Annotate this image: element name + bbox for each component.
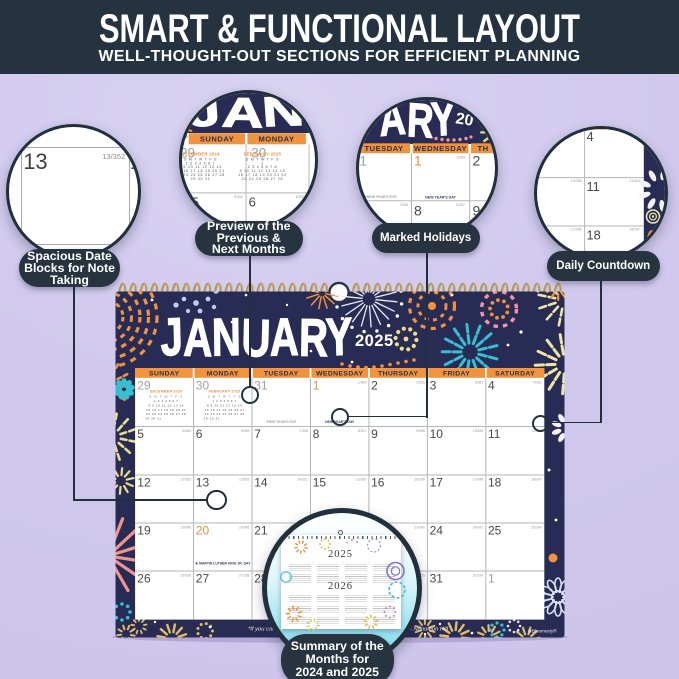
svg-text:10: 10 (430, 427, 444, 441)
svg-text:29 30 31: 29 30 31 (145, 417, 161, 421)
svg-text:20: 20 (196, 524, 210, 538)
svg-text:27: 27 (196, 572, 210, 586)
svg-text:7: 7 (254, 427, 261, 441)
svg-text:4/361: 4/361 (631, 130, 640, 134)
svg-text:18: 18 (587, 228, 601, 243)
svg-text:9: 9 (371, 427, 378, 441)
svg-text:9/356: 9/356 (416, 429, 425, 433)
svg-text:SUNDAY: SUNDAY (149, 370, 180, 377)
svg-text:2/363: 2/363 (416, 380, 425, 384)
svg-text:JANUARY: JANUARY (159, 308, 353, 369)
svg-text:2: 2 (371, 378, 378, 392)
svg-text:✿Bloomesty®: ✿Bloomesty® (528, 628, 557, 634)
svg-text:5: 5 (192, 195, 199, 210)
svg-text:WEDNESDAY: WEDNESDAY (414, 144, 467, 153)
svg-text:15 16 17 18 19 20 21: 15 16 17 18 19 20 21 (204, 408, 244, 412)
svg-text:★ MARTIN LUTHER KING JR. DAY: ★ MARTIN LUTHER KING JR. DAY (194, 562, 251, 566)
svg-text:1: 1 (488, 572, 495, 586)
svg-text:3: 3 (430, 378, 437, 392)
svg-text:31: 31 (356, 153, 368, 169)
svg-text:8/357: 8/357 (358, 429, 367, 433)
svg-text:23 24 25 26 27 28: 23 24 25 26 27 28 (242, 177, 284, 181)
svg-text:7/358: 7/358 (399, 203, 408, 207)
svg-text:2: 2 (473, 153, 481, 169)
svg-text:5: 5 (137, 427, 144, 441)
svg-text:DECEMBER 2024: DECEMBER 2024 (150, 389, 183, 393)
svg-text:S M T W T F S: S M T W T F S (208, 394, 242, 398)
svg-text:29 30 31: 29 30 31 (191, 177, 211, 181)
svg-text:18/347: 18/347 (629, 228, 640, 232)
svg-text:1/364: 1/364 (456, 156, 465, 160)
svg-text:4/361: 4/361 (533, 380, 542, 384)
svg-text:17: 17 (430, 476, 444, 490)
svg-text:21: 21 (254, 524, 268, 538)
svg-text:18: 18 (488, 476, 502, 490)
svg-text:8/357: 8/357 (456, 203, 465, 207)
svg-text:24: 24 (430, 524, 444, 538)
svg-text:13: 13 (196, 476, 210, 490)
svg-text:THURSDAY: THURSDAY (378, 370, 418, 377)
svg-text:JAN: JAN (187, 90, 305, 137)
svg-text:1/364: 1/364 (358, 380, 367, 384)
svg-text:13/352: 13/352 (239, 478, 249, 482)
svg-text:*NEW YEAR'S EVE: *NEW YEAR'S EVE (266, 420, 297, 424)
svg-text:11/354: 11/354 (630, 179, 640, 183)
svg-text:5/360: 5/360 (183, 429, 192, 433)
svg-text:8: 8 (414, 203, 422, 219)
svg-text:6/359: 6/359 (296, 195, 305, 199)
svg-text:NEW YEAR'S DAY: NEW YEAR'S DAY (425, 196, 456, 200)
svg-text:26: 26 (137, 572, 151, 586)
svg-text:31: 31 (430, 572, 444, 586)
svg-text:7/358: 7/358 (299, 429, 308, 433)
svg-text:26/339: 26/339 (181, 574, 191, 578)
svg-text:3/362: 3/362 (573, 130, 582, 134)
svg-text:17/348: 17/348 (473, 478, 483, 482)
svg-text:10/355: 10/355 (473, 429, 483, 433)
svg-text:6: 6 (196, 427, 203, 441)
svg-text:DECEMBER 2024: DECEMBER 2024 (182, 152, 221, 157)
svg-text:6/359: 6/359 (241, 429, 250, 433)
svg-text:1 2 3 4 5 6 7: 1 2 3 4 5 6 7 (212, 399, 236, 403)
svg-text:*NEW YEAR'S EVE: *NEW YEAR'S EVE (366, 195, 398, 199)
svg-text:19: 19 (137, 524, 151, 538)
svg-text:9: 9 (473, 203, 481, 219)
svg-text:15: 15 (313, 476, 327, 490)
svg-text:17/348: 17/348 (571, 228, 582, 232)
svg-text:FEBRUARY 2025: FEBRUARY 2025 (209, 389, 241, 393)
svg-text:11: 11 (587, 179, 600, 194)
svg-text:12/353: 12/353 (181, 478, 191, 482)
svg-text:5/360: 5/360 (234, 195, 243, 199)
svg-text:SUNDAY: SUNDAY (200, 135, 234, 144)
svg-text:30: 30 (196, 378, 210, 392)
svg-text:SATURDAY: SATURDAY (495, 370, 535, 377)
svg-text:11: 11 (488, 427, 501, 441)
svg-text:4: 4 (587, 129, 594, 144)
svg-text:15/350: 15/350 (356, 478, 366, 482)
svg-text:20: 20 (455, 110, 475, 130)
svg-text:14: 14 (254, 476, 268, 490)
svg-text:3/362: 3/362 (475, 380, 484, 384)
svg-text:18/347: 18/347 (531, 478, 541, 482)
svg-text:25/340: 25/340 (531, 526, 541, 530)
svg-text:1: 1 (313, 378, 320, 392)
svg-text:ARY: ARY (377, 97, 456, 149)
svg-text:16/349: 16/349 (414, 478, 424, 482)
svg-text:TUESDAY: TUESDAY (264, 370, 299, 377)
svg-text:S M T W T F S: S M T W T F S (149, 394, 183, 398)
svg-text:12: 12 (137, 476, 151, 490)
svg-text:TUESDAY: TUESDAY (365, 144, 404, 153)
svg-text:FEBRUARY 2025: FEBRUARY 2025 (244, 152, 282, 157)
svg-text:14/351: 14/351 (298, 478, 308, 482)
svg-text:15 16 17 18 19 20 21: 15 16 17 18 19 20 21 (146, 408, 186, 412)
svg-text:WEDNESDAY: WEDNESDAY (316, 370, 363, 377)
svg-text:19/346: 19/346 (181, 526, 191, 530)
svg-text:TH: TH (478, 144, 489, 153)
svg-text:20/345: 20/345 (239, 526, 249, 530)
svg-text:1: 1 (414, 153, 422, 169)
svg-text:FRIDAY: FRIDAY (443, 370, 470, 377)
svg-text:31/334: 31/334 (473, 574, 483, 578)
svg-text:24/341: 24/341 (473, 526, 483, 530)
svg-text:25: 25 (488, 524, 502, 538)
svg-text:16: 16 (371, 476, 385, 490)
svg-text:MONDAY: MONDAY (259, 135, 295, 144)
svg-text:8: 8 (313, 427, 320, 441)
svg-text:27/338: 27/338 (239, 574, 249, 578)
svg-text:4: 4 (488, 378, 495, 392)
svg-text:10/355: 10/355 (571, 179, 582, 183)
svg-text:1 2 3 4 5 6 7: 1 2 3 4 5 6 7 (154, 399, 178, 403)
svg-text:2025: 2025 (355, 332, 394, 350)
svg-text:6: 6 (249, 195, 256, 210)
svg-text:MONDAY: MONDAY (207, 370, 239, 377)
svg-text:29 30 31: 29 30 31 (204, 417, 220, 421)
